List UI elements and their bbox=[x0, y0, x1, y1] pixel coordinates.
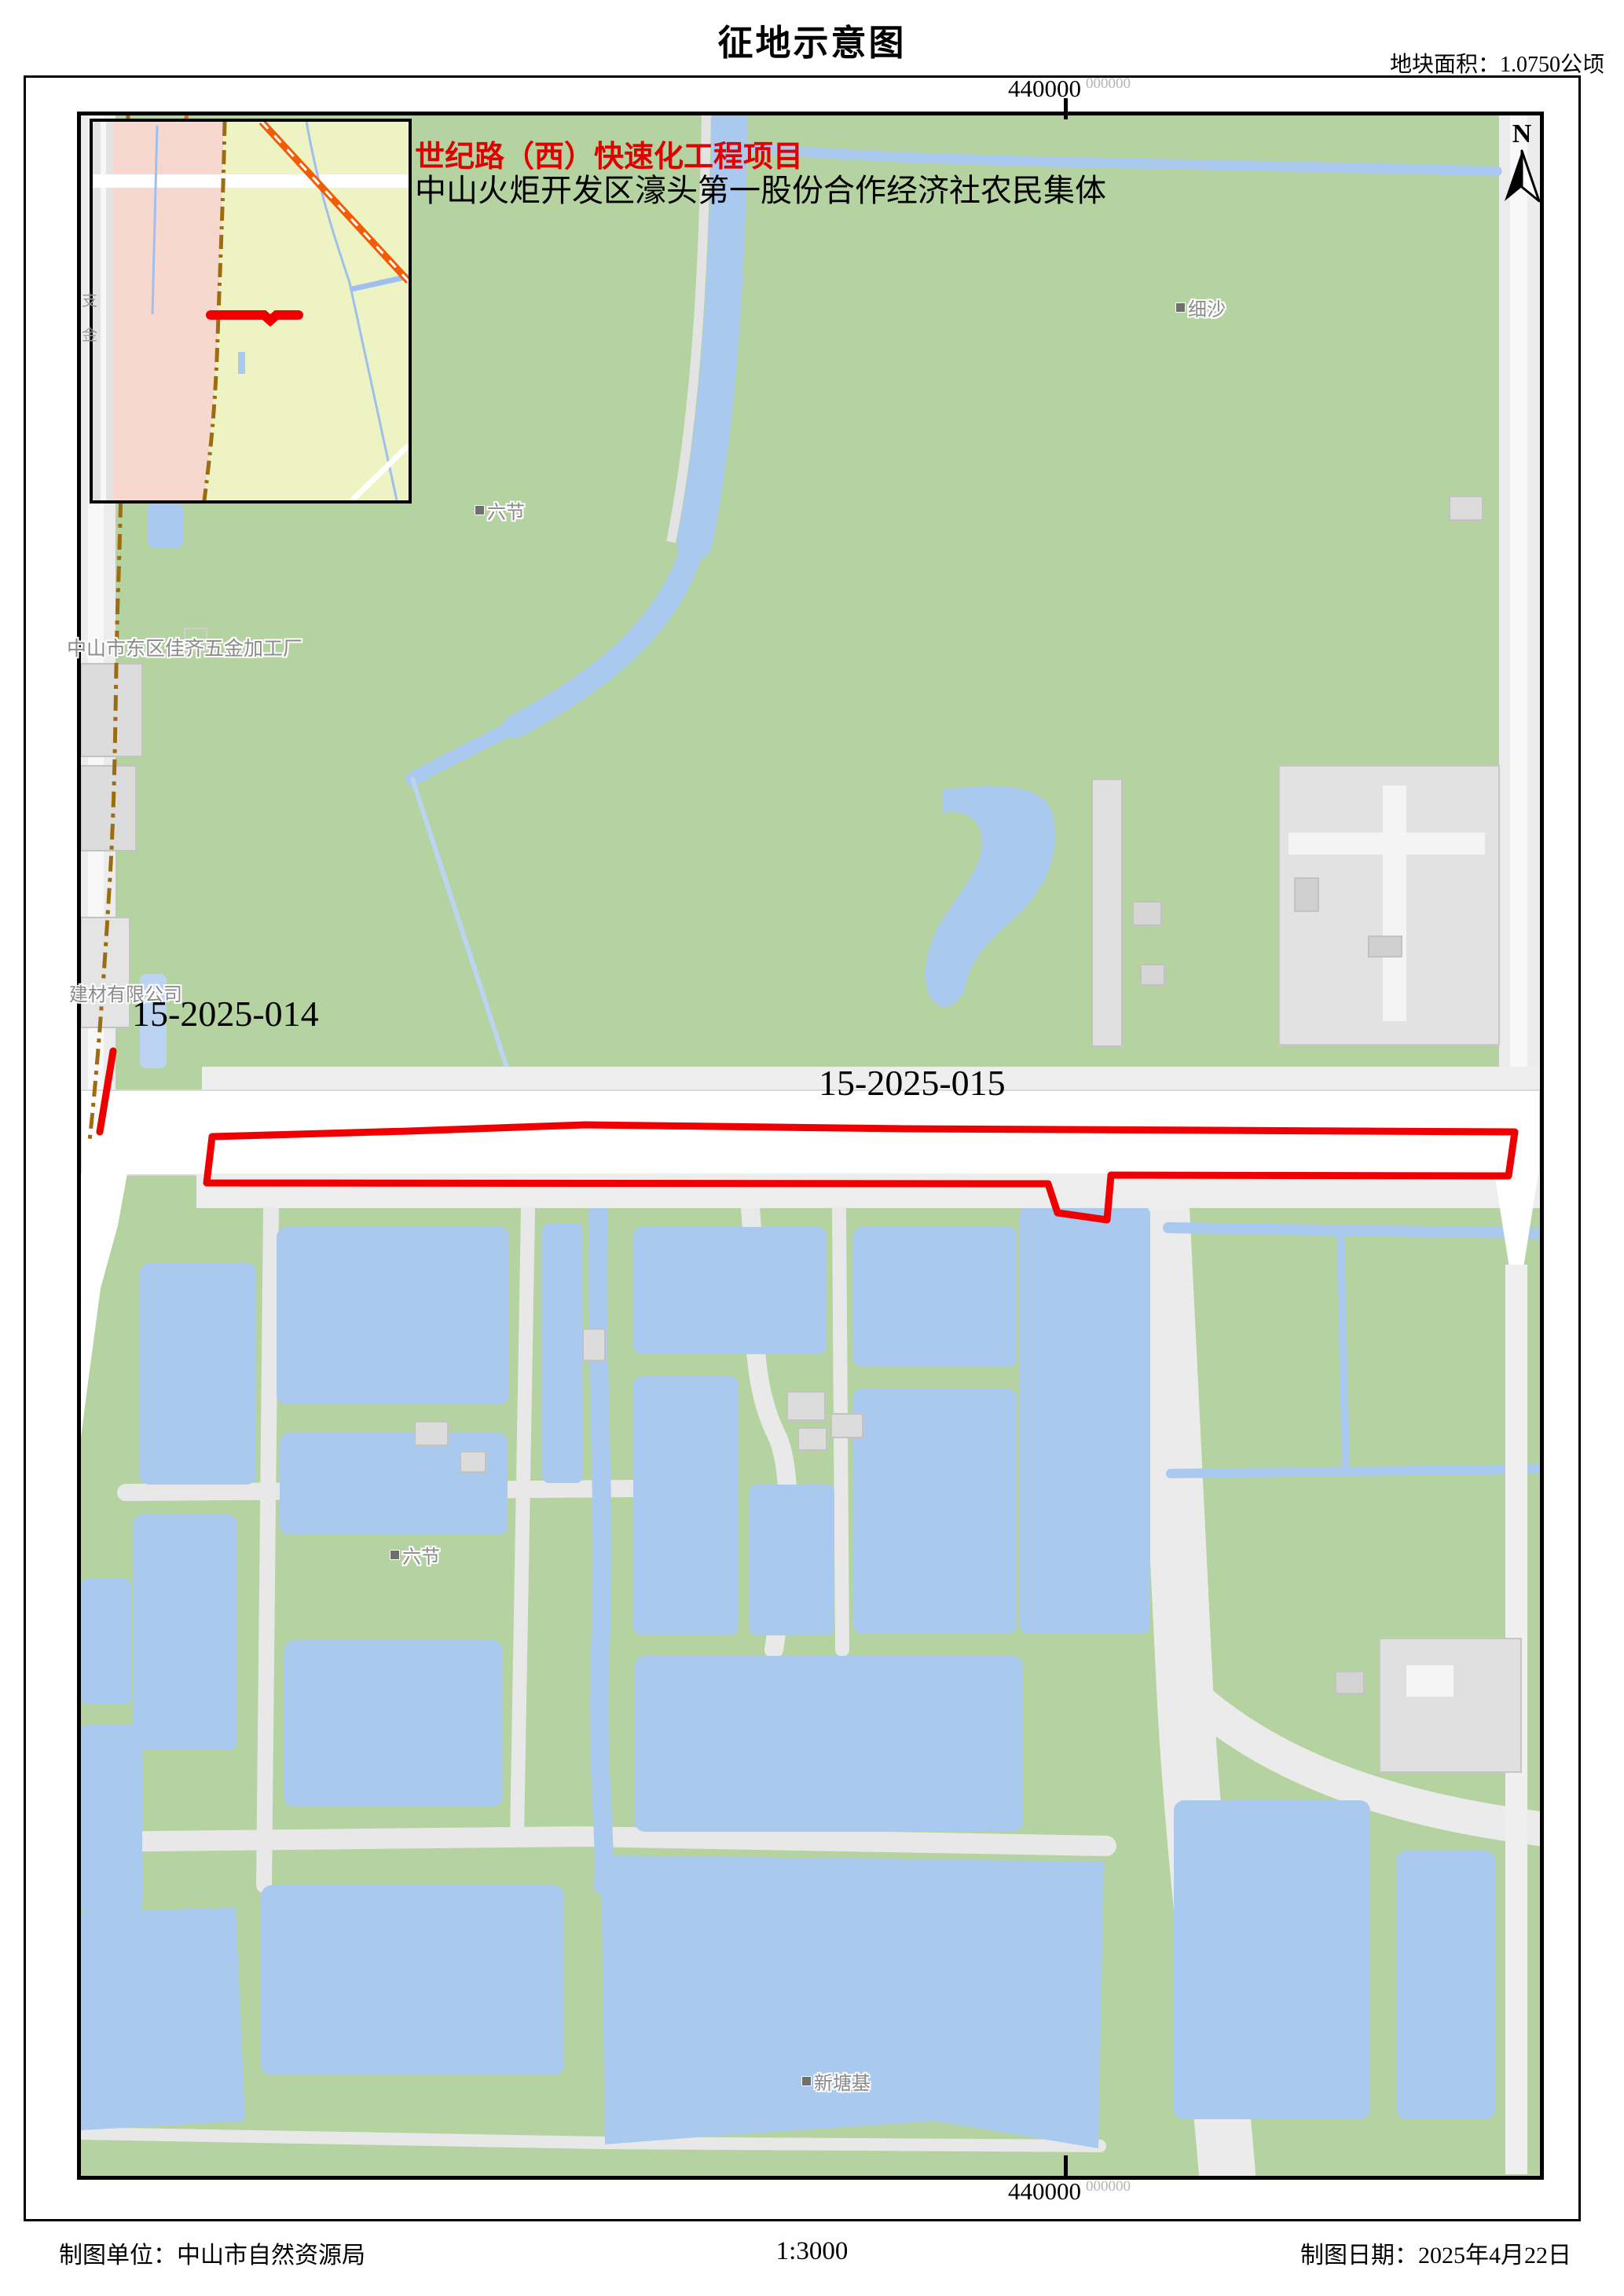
coordinate-tick-top bbox=[1064, 98, 1068, 119]
place-marker-icon bbox=[390, 1550, 400, 1560]
place-marker-icon bbox=[475, 505, 485, 515]
coordinate-label-top: 440000000000 bbox=[1008, 75, 1131, 103]
collective-name-label: 中山火炬开发区濠头第一股份合作经济社农民集体 bbox=[415, 165, 1106, 211]
parcel-id-014: 15-2025-014 bbox=[132, 993, 319, 1034]
page-title: 征地示意图 bbox=[0, 14, 1624, 65]
roadside-char-1: 支 bbox=[82, 287, 97, 310]
place-label-xintangji: 新塘基 bbox=[801, 2067, 871, 2095]
inset-road bbox=[93, 174, 409, 188]
inset-map bbox=[90, 119, 412, 504]
coordinate-label-bottom: 440000000000 bbox=[1008, 2177, 1131, 2206]
place-marker-icon bbox=[1175, 302, 1186, 313]
north-arrow: N bbox=[1497, 119, 1547, 214]
coordinate-tick-bottom bbox=[1064, 2155, 1068, 2177]
inset-project-marker bbox=[211, 315, 299, 320]
parcel-id-015: 15-2025-015 bbox=[819, 1062, 1006, 1104]
footer-date: 制图日期：2025年4月22日 bbox=[1300, 2236, 1571, 2270]
area-note: 地块面积：1.0750公顷 bbox=[1390, 47, 1604, 79]
roadside-char-2: 金 bbox=[82, 322, 97, 345]
north-arrow-icon bbox=[1497, 149, 1547, 214]
place-marker-icon bbox=[801, 2076, 812, 2086]
map-sheet: 征地示意图 地块面积：1.0750公顷 bbox=[0, 0, 1624, 2296]
place-label-xisha: 细沙 bbox=[1175, 294, 1226, 321]
place-label-factory: 中山市东区佳齐五金加工厂 bbox=[67, 633, 302, 661]
place-label-liujie-2: 六节 bbox=[390, 1541, 440, 1569]
place-label-liujie-1: 六节 bbox=[475, 496, 525, 524]
north-label: N bbox=[1497, 119, 1547, 149]
